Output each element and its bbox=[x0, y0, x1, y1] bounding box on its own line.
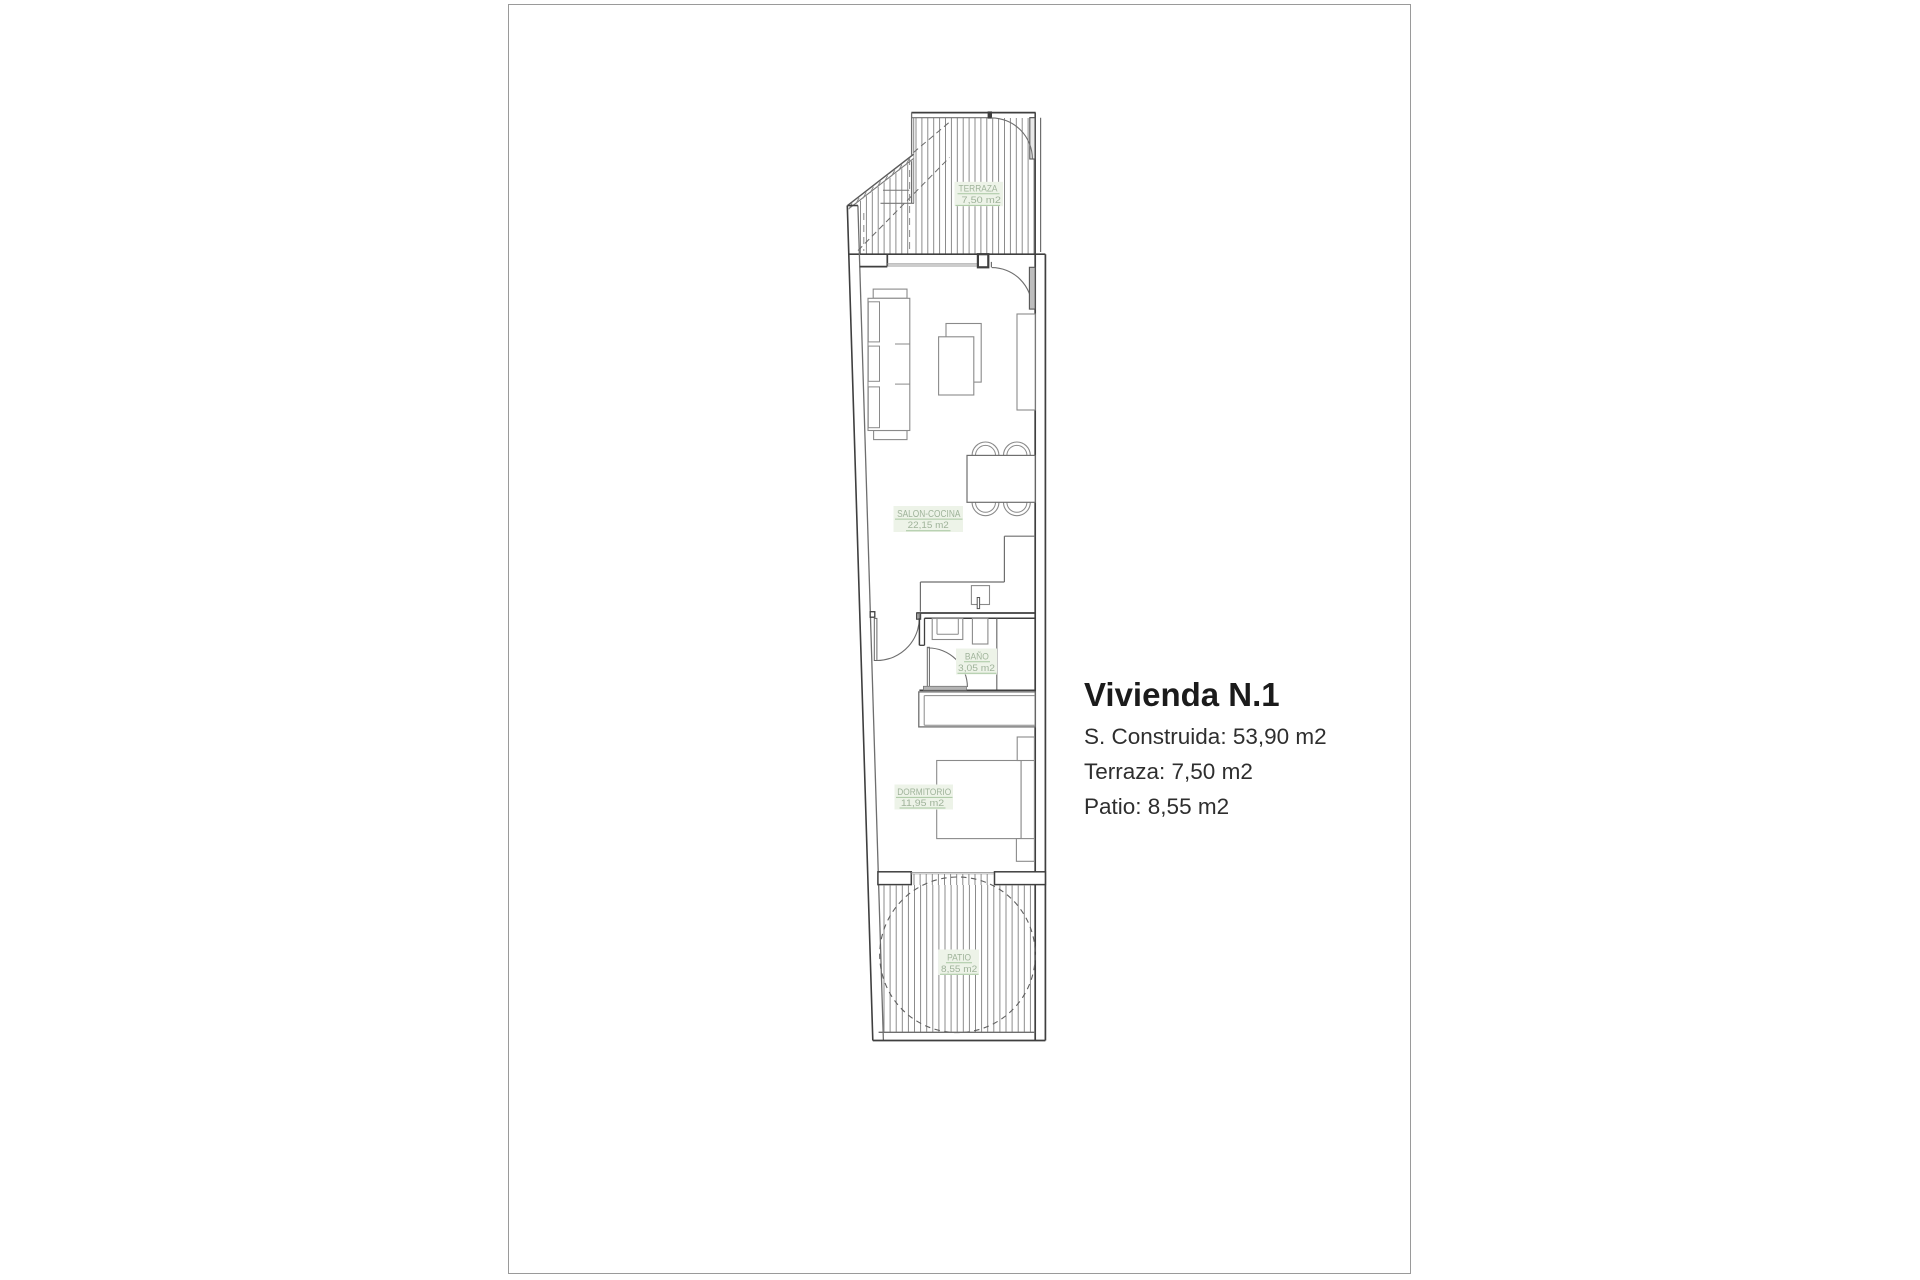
svg-text:11,95 m2: 11,95 m2 bbox=[901, 798, 944, 808]
svg-text:SALON-COCINA: SALON-COCINA bbox=[897, 509, 961, 520]
svg-text:TERRAZA: TERRAZA bbox=[959, 183, 999, 193]
svg-text:3,05 m2: 3,05 m2 bbox=[958, 662, 995, 673]
svg-text:DORMITORIO: DORMITORIO bbox=[897, 787, 951, 797]
svg-text:22,15 m2: 22,15 m2 bbox=[908, 520, 949, 531]
svg-text:7,50 m2: 7,50 m2 bbox=[962, 195, 1001, 205]
svg-text:8,55 m2: 8,55 m2 bbox=[941, 963, 977, 974]
